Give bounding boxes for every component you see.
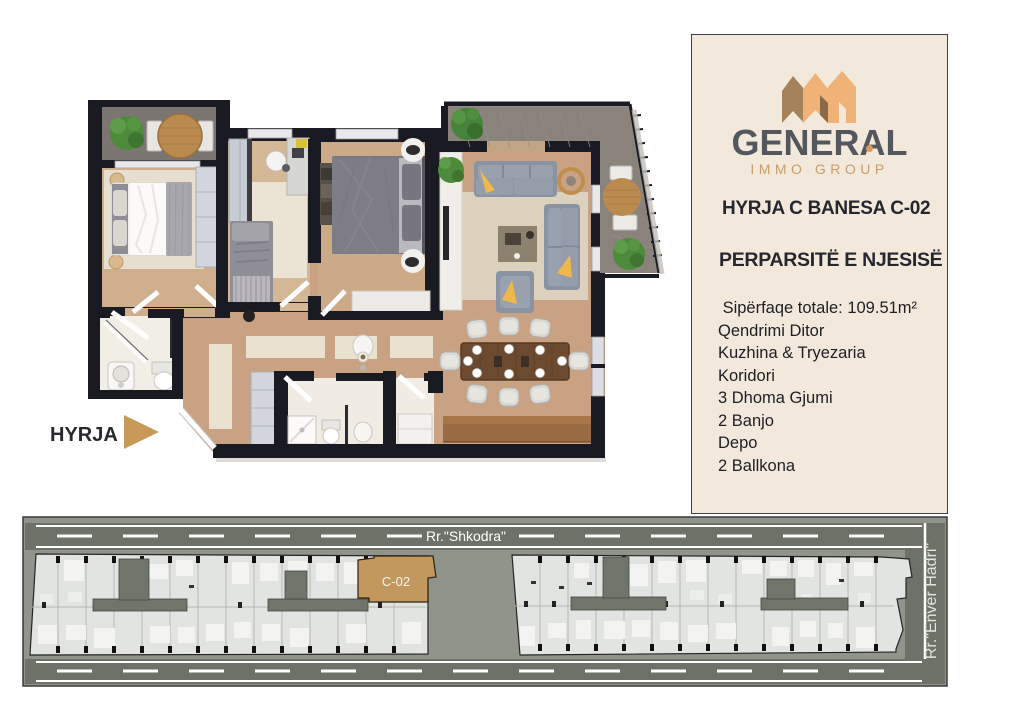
svg-text:Rr."Enver Hadri": Rr."Enver Hadri" — [923, 543, 940, 659]
svg-text:C-02: C-02 — [382, 574, 410, 589]
svg-text:HYRJA: HYRJA — [50, 424, 118, 446]
svg-text:Rr."Shkodra": Rr."Shkodra" — [426, 528, 506, 544]
